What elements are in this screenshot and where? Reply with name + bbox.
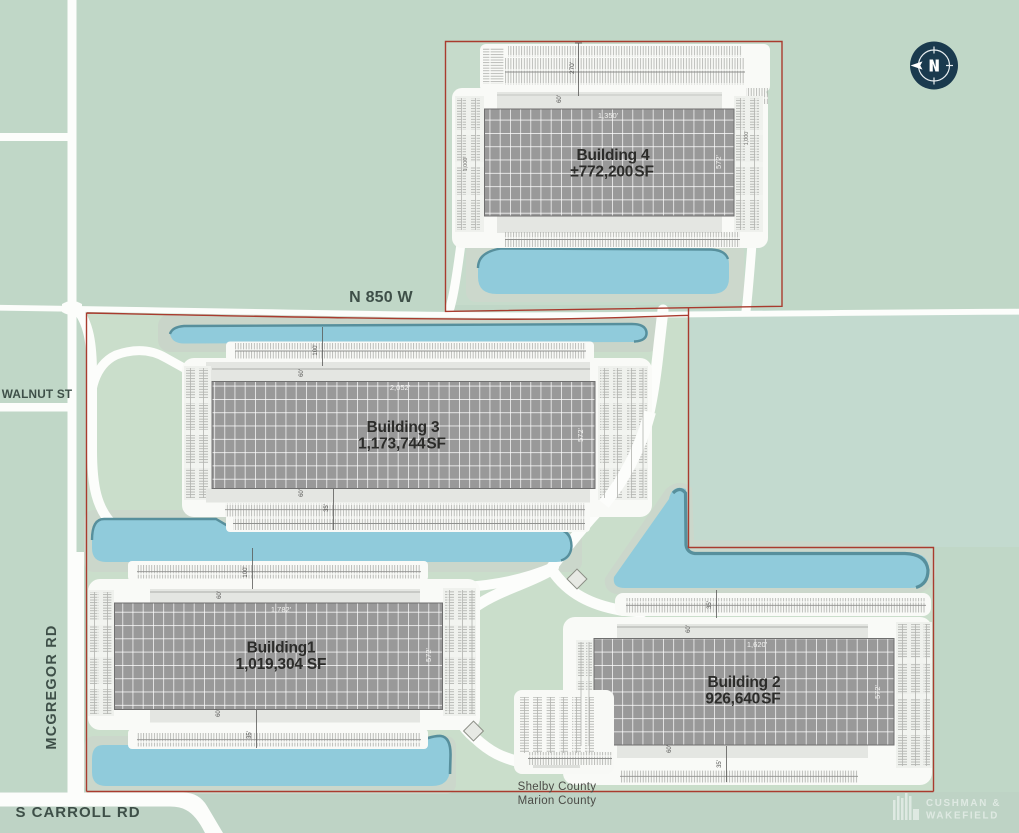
- svg-text:60': 60': [686, 625, 692, 633]
- svg-text:1,782': 1,782': [271, 605, 292, 614]
- svg-text:±772,200 SF: ±772,200 SF: [570, 164, 653, 181]
- svg-text:Building 4: Building 4: [577, 147, 650, 164]
- svg-text:2,052': 2,052': [390, 383, 411, 392]
- svg-text:270': 270': [569, 62, 576, 74]
- svg-text:60': 60': [217, 591, 223, 599]
- svg-text:1,000': 1,000': [463, 157, 469, 172]
- svg-text:100': 100': [313, 344, 319, 355]
- svg-text:572': 572': [873, 684, 882, 699]
- svg-text:CUSHMAN &: CUSHMAN &: [926, 798, 1001, 809]
- svg-text:60': 60': [299, 369, 305, 377]
- svg-text:Marion County: Marion County: [518, 795, 597, 807]
- svg-text:35': 35': [717, 760, 723, 768]
- svg-text:Shelby County: Shelby County: [518, 781, 597, 793]
- svg-text:N 850 W: N 850 W: [349, 289, 413, 306]
- svg-text:572': 572': [714, 154, 723, 169]
- svg-text:1,000': 1,000': [744, 131, 750, 146]
- svg-text:35': 35': [247, 731, 253, 739]
- svg-text:1,620': 1,620': [747, 640, 768, 649]
- svg-text:Building1: Building1: [247, 640, 316, 657]
- svg-text:926,640 SF: 926,640 SF: [705, 691, 780, 708]
- svg-text:572': 572': [576, 427, 585, 442]
- svg-text:S CARROLL RD: S CARROLL RD: [15, 804, 140, 821]
- svg-text:60': 60': [216, 709, 222, 717]
- svg-text:1,173,744 SF: 1,173,744 SF: [358, 436, 446, 453]
- svg-text:60': 60': [299, 489, 305, 497]
- svg-text:35': 35': [707, 601, 713, 609]
- svg-text:60': 60': [557, 95, 563, 103]
- svg-text:WALNUT ST: WALNUT ST: [2, 387, 73, 401]
- svg-text:WAKEFIELD: WAKEFIELD: [926, 811, 999, 822]
- svg-text:572': 572': [424, 647, 433, 662]
- svg-text:1,350': 1,350': [598, 111, 619, 120]
- svg-text:35': 35': [324, 504, 330, 512]
- svg-text:Building 3: Building 3: [367, 419, 440, 436]
- svg-text:1,019,304 SF: 1,019,304 SF: [236, 656, 327, 673]
- svg-text:MCGREGOR RD: MCGREGOR RD: [44, 624, 60, 749]
- svg-text:Building 2: Building 2: [708, 674, 781, 691]
- svg-text:60': 60': [667, 745, 673, 753]
- svg-text:100': 100': [243, 566, 249, 577]
